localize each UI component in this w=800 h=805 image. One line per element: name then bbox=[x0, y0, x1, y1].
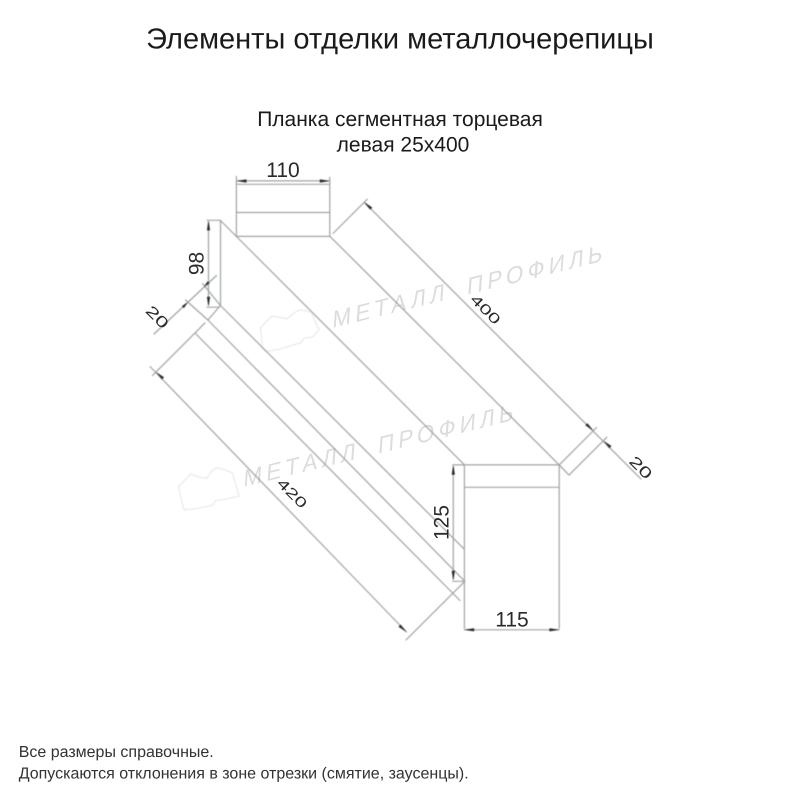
svg-text:Все размеры справочные.: Все размеры справочные. bbox=[19, 744, 214, 761]
svg-text:98: 98 bbox=[186, 252, 209, 275]
svg-text:Допускаются отклонения в зоне: Допускаются отклонения в зоне отрезки (с… bbox=[19, 766, 469, 783]
svg-text:Элементы отделки металлочерепи: Элементы отделки металлочерепицы bbox=[146, 24, 654, 56]
svg-text:левая 25х400: левая 25х400 bbox=[337, 134, 470, 157]
svg-text:125: 125 bbox=[431, 505, 454, 540]
svg-text:Планка сегментная торцевая: Планка сегментная торцевая bbox=[257, 108, 543, 131]
svg-text:110: 110 bbox=[266, 159, 299, 182]
svg-text:115: 115 bbox=[495, 609, 528, 632]
